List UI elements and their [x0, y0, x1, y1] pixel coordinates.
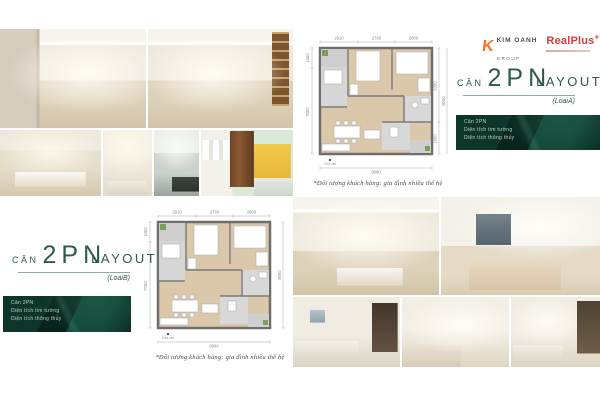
- photo-sofa-living: [293, 297, 400, 367]
- dim-right-2: 8050: [277, 270, 282, 280]
- kim-oanh-logo: K KIM OANH GROUP: [482, 29, 537, 65]
- info-line: Căn 2PN: [11, 301, 131, 306]
- brand-logos: K KIM OANH GROUP RealPlus+: [482, 29, 599, 65]
- photo-living-dining-2: [293, 197, 439, 295]
- plan-b-caption: *Đối tượng khách hàng: gia đình nhiều th…: [140, 354, 300, 361]
- layout-a-title: CĂN 2PN LAYOUT (LoaiA): [457, 64, 593, 105]
- title-big: 2PN: [488, 64, 552, 93]
- info-line: Diện tích thông thủy: [464, 136, 600, 141]
- layout-b-title: CĂN 2PN LAYOUT (LoaiB): [12, 241, 148, 282]
- kim-oanh-k-icon: K: [481, 40, 495, 54]
- dim-top-1: 2910: [172, 210, 182, 215]
- dim-left-2: 7050: [143, 281, 148, 291]
- floor-plan-b: 2910 2760 2800 1000 7050 8050 8990: [138, 208, 290, 352]
- plan-entry-marker: [167, 333, 169, 335]
- dim-top-2: 2760: [210, 210, 220, 215]
- plan-plant-icon: [322, 50, 328, 56]
- plan-plant-icon: [160, 224, 166, 230]
- title-prefix: CĂN: [457, 78, 484, 88]
- layout-a-info-box: Căn 2PN Diện tích tim tường Diện tích th…: [456, 115, 600, 150]
- title-underline: [463, 95, 575, 96]
- plan-plant-icon: [263, 320, 268, 325]
- plan-a-caption: *Đối tượng khách hàng: gia đình nhiều th…: [298, 180, 458, 187]
- title-big: 2PN: [43, 241, 107, 270]
- brochure-page: K KIM OANH GROUP RealPlus+ CĂN 2PN LAYOU…: [0, 0, 600, 400]
- title-prefix: CĂN: [12, 255, 39, 265]
- plan-entry-marker: [329, 159, 331, 161]
- photo-hallway-sofa: [402, 297, 509, 367]
- realplus-logo: RealPlus+: [546, 29, 599, 52]
- dim-top-3: 2800: [247, 210, 257, 215]
- realplus-tagline: [546, 50, 590, 52]
- layout-b-info-box: Căn 2PN Diện tích tim tường Diện tích th…: [3, 296, 131, 332]
- dim-right-2: 8050: [441, 96, 446, 106]
- plan-entry-label: Cửa vào: [162, 336, 174, 340]
- photo-master-bedroom: [441, 197, 600, 295]
- kim-oanh-sub: GROUP: [497, 56, 521, 61]
- photo-kids-bedroom: [201, 130, 293, 196]
- photo-dining-area: [0, 130, 101, 196]
- dim-left-1: 1000: [143, 227, 148, 237]
- dim-top-1: 2910: [334, 36, 344, 41]
- dim-bottom: 8990: [371, 170, 381, 175]
- kim-oanh-name: KIM OANH: [497, 37, 538, 44]
- dim-left-2: 7050: [305, 107, 310, 117]
- photo-living-pendant: [103, 130, 152, 196]
- plan-plant-icon: [425, 146, 430, 151]
- dim-top-3: 2800: [409, 36, 419, 41]
- realplus-name: RealPlus+: [546, 35, 599, 47]
- photo-living-dining: [148, 29, 293, 128]
- title-variant: (LoaiA): [552, 98, 575, 105]
- dim-top-2: 2760: [372, 36, 382, 41]
- photo-hallway-dining: [0, 29, 146, 128]
- title-variant: (LoaiB): [107, 275, 130, 282]
- info-line: Căn 2PN: [464, 120, 600, 125]
- info-line: Diện tích tim tường: [11, 309, 131, 314]
- floor-plan-a: 2910 2760 2800 1400 7050 6390 8050 1660 …: [300, 34, 452, 178]
- dim-bottom: 8990: [209, 344, 219, 349]
- plan-entry-label: Cửa vào: [324, 162, 336, 166]
- realplus-plus-icon: +: [595, 32, 600, 41]
- dim-left-1: 1400: [305, 53, 310, 63]
- photo-living-tv: [511, 297, 600, 367]
- info-line: Diện tích tim tường: [464, 128, 600, 133]
- photo-bathroom: [154, 130, 199, 196]
- info-line: Diện tích thông thủy: [11, 317, 131, 322]
- title-underline: [18, 272, 130, 273]
